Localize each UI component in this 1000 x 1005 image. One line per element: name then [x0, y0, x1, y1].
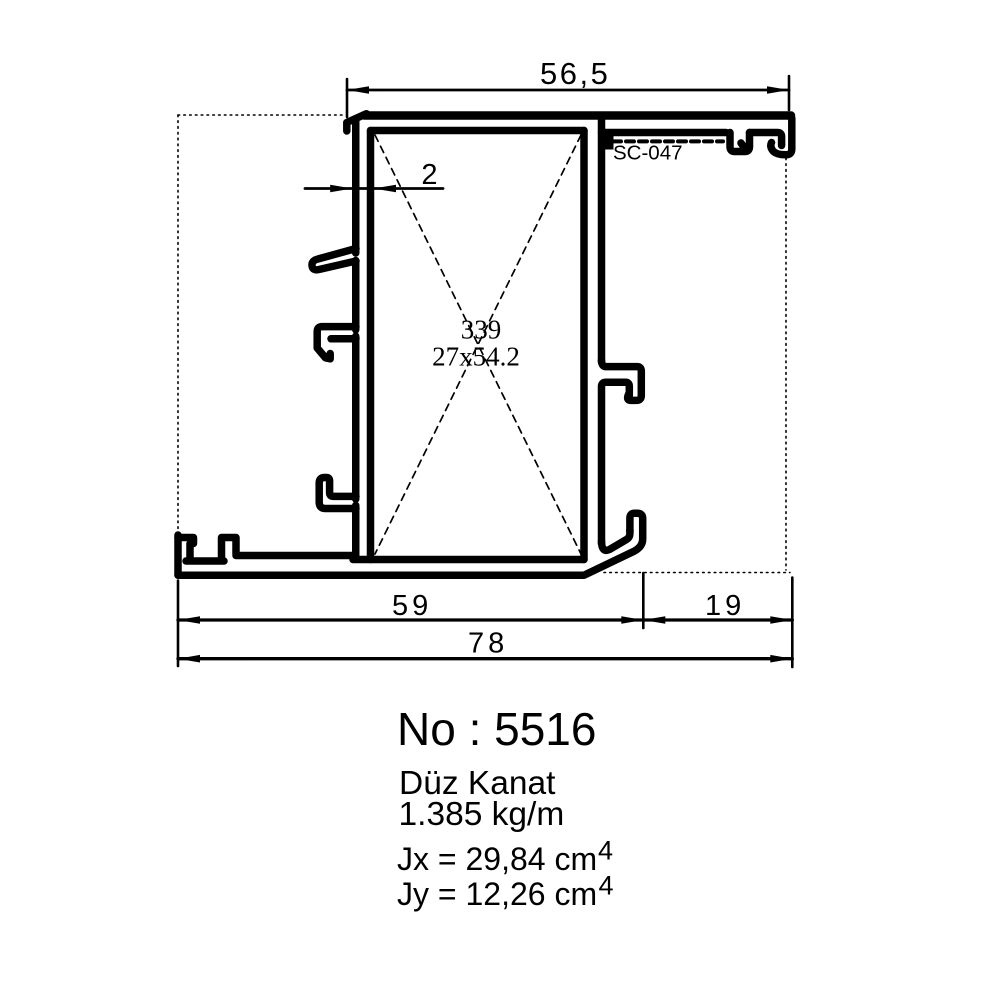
svg-text:339: 339: [461, 315, 502, 345]
svg-text:2: 2: [421, 159, 437, 191]
svg-text:27x54.2: 27x54.2: [432, 342, 520, 372]
svg-text:Jx = 29,84 cm: Jx = 29,84 cm: [397, 841, 597, 877]
svg-text:SC-047: SC-047: [613, 142, 683, 165]
svg-text:1.385 kg/m: 1.385 kg/m: [399, 796, 565, 833]
svg-text:78: 78: [468, 628, 508, 660]
svg-text:4: 4: [599, 871, 614, 901]
svg-text:56,5: 56,5: [540, 56, 610, 91]
svg-text:No : 5516: No : 5516: [397, 703, 596, 755]
svg-text:Jy = 12,26 cm: Jy = 12,26 cm: [397, 876, 597, 912]
svg-text:4: 4: [598, 836, 613, 866]
svg-text:59: 59: [392, 590, 432, 622]
svg-text:19: 19: [705, 590, 745, 622]
